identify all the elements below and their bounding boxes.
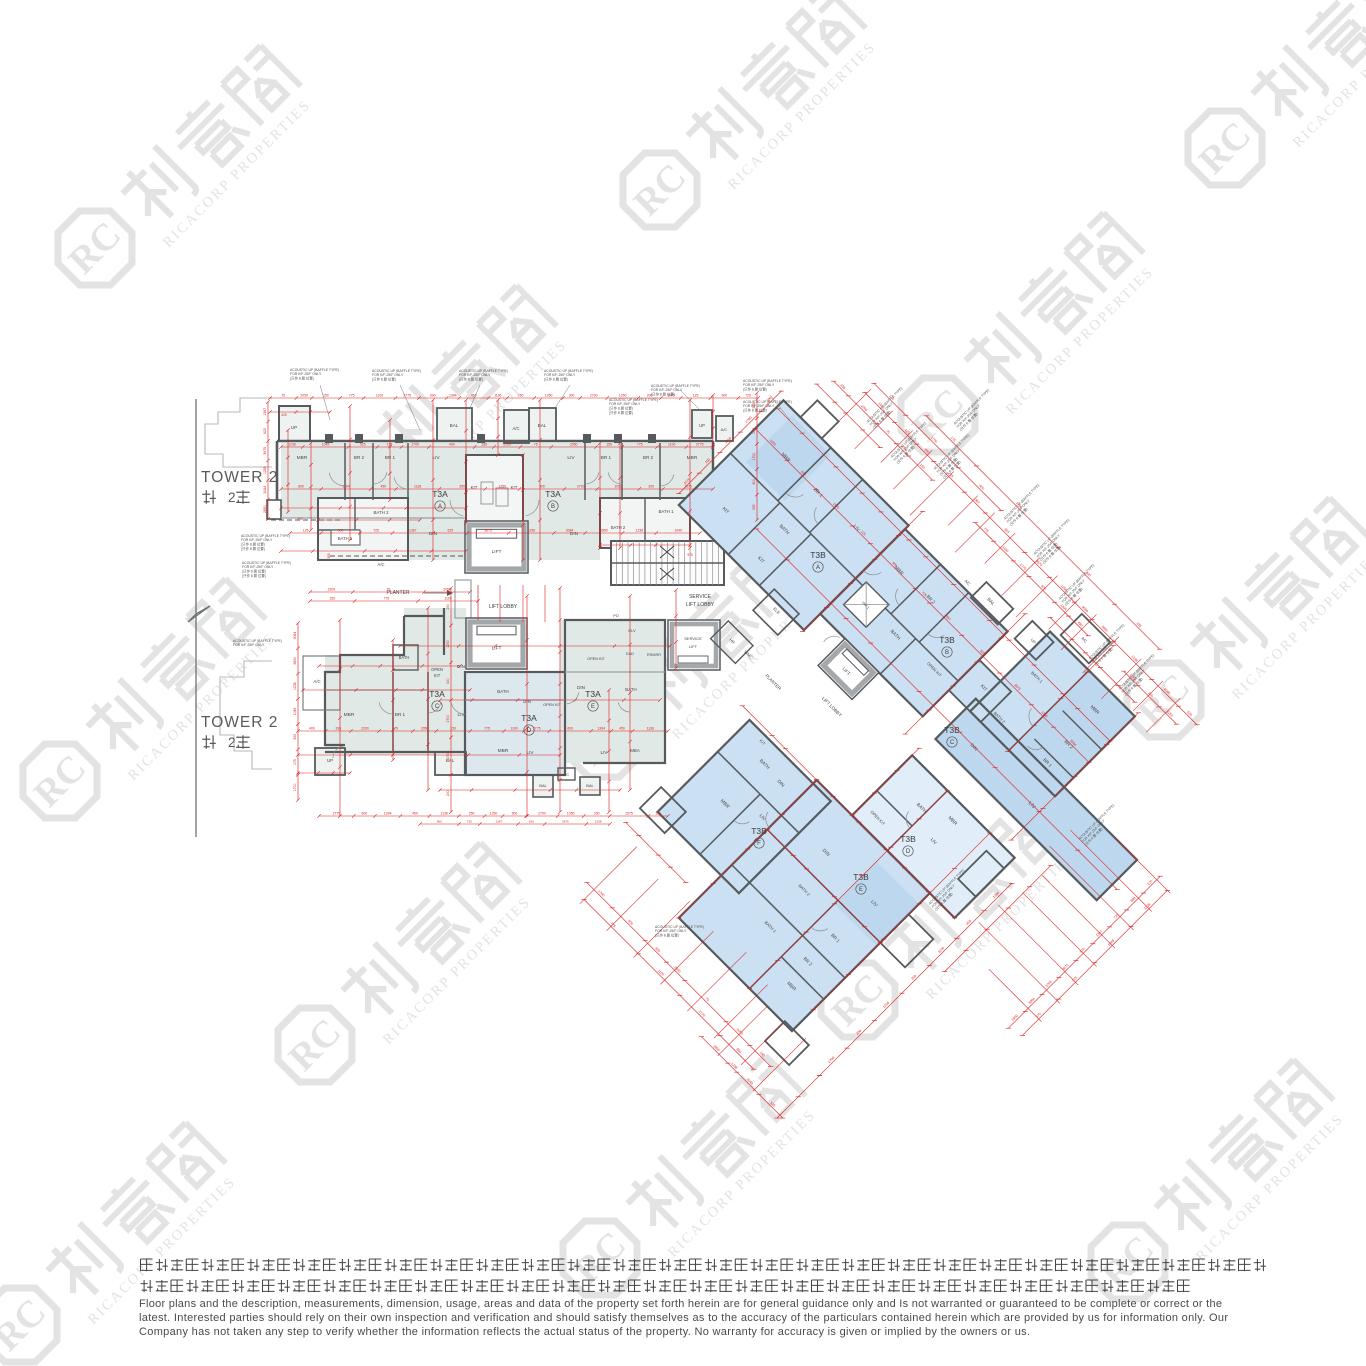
svg-text:1367: 1367 [263,408,267,416]
svg-text:900: 900 [338,528,344,532]
svg-text:2: 2 [228,490,236,505]
svg-text:T3B: T3B [751,826,767,836]
svg-text:Floor plans and the descriptio: Floor plans and the description, measure… [139,1298,1222,1310]
svg-text:1136: 1136 [440,811,447,815]
svg-text:725: 725 [745,393,751,397]
svg-text:F: F [757,841,761,847]
svg-text:BATH: BATH [625,687,636,692]
svg-text:1136: 1136 [414,484,421,488]
svg-text:2850: 2850 [600,528,608,532]
svg-text:BAL: BAL [450,423,459,428]
svg-text:2200: 2200 [503,442,511,446]
svg-text:400: 400 [309,726,315,730]
svg-text:E: E [859,887,863,893]
svg-text:RSMRR: RSMRR [647,653,661,657]
svg-text:1136: 1136 [647,726,654,730]
svg-text:450: 450 [412,811,418,815]
svg-text:(只作 8 層 位置): (只作 8 層 位置) [655,933,679,938]
svg-text:1049: 1049 [674,528,682,532]
svg-text:D: D [906,849,911,855]
svg-text:1050: 1050 [619,393,627,397]
svg-text:600: 600 [430,393,436,397]
svg-text:2700: 2700 [577,484,585,488]
svg-text:1250: 1250 [545,393,553,397]
svg-text:1100: 1100 [510,726,517,730]
svg-text:3675: 3675 [562,819,569,823]
svg-text:725: 725 [467,819,472,823]
svg-text:OPEN KIT: OPEN KIT [543,703,561,707]
svg-text:75: 75 [281,393,285,397]
svg-text:2700: 2700 [538,811,546,815]
svg-text:ELV: ELV [628,628,636,633]
svg-text:1700: 1700 [752,453,756,461]
svg-text:BR 2: BR 2 [643,455,654,460]
svg-text:1136: 1136 [494,393,501,397]
svg-text:A/C: A/C [513,426,520,431]
svg-text:BAL: BAL [539,783,547,788]
svg-text:2775: 2775 [533,726,541,730]
svg-text:LIFT: LIFT [492,646,502,652]
svg-text:2050: 2050 [570,442,578,446]
svg-text:75: 75 [387,587,391,591]
svg-text:400: 400 [449,442,455,446]
svg-text:LIV: LIV [567,455,575,461]
svg-text:600: 600 [567,726,573,730]
svg-text:425: 425 [281,413,287,417]
svg-text:335: 335 [481,442,487,446]
svg-text:1049: 1049 [322,442,330,446]
svg-text:(只作 8 層 位置): (只作 8 層 位置) [609,410,633,415]
svg-text:450: 450 [380,484,386,488]
svg-text:BR 1: BR 1 [601,455,612,460]
svg-text:2700: 2700 [590,393,598,397]
svg-text:MBR: MBR [344,712,355,718]
svg-text:3084: 3084 [566,528,574,532]
svg-text:1100: 1100 [668,442,675,446]
svg-text:T3A: T3A [585,689,601,699]
svg-text:2050: 2050 [421,726,429,730]
svg-text:TOWER 2: TOWER 2 [201,714,278,731]
svg-text:200: 200 [446,790,450,796]
svg-text:250: 250 [446,604,450,610]
svg-text:T3A: T3A [432,489,448,499]
svg-text:(只作 8 層 位置): (只作 8 層 位置) [372,377,396,382]
svg-text:1394: 1394 [342,484,350,488]
svg-text:300: 300 [512,811,518,815]
svg-text:B: B [551,504,555,510]
svg-text:(只作 8 層 位置): (只作 8 層 位置) [609,406,633,411]
svg-text:300: 300 [569,393,575,397]
svg-text:900: 900 [721,393,727,397]
svg-text:400: 400 [752,479,756,485]
svg-text:2775: 2775 [333,811,341,815]
svg-text:BATH: BATH [399,655,410,660]
svg-text:625: 625 [263,428,267,434]
svg-text:(只作 8 層 位置): (只作 8 層 位置) [743,408,767,413]
svg-text:725: 725 [373,528,379,532]
svg-text:1575: 1575 [625,811,633,815]
svg-text:2200: 2200 [328,587,336,591]
svg-text:A/C: A/C [721,427,728,432]
svg-text:(只作 8 層 位置): (只作 8 層 位置) [242,573,266,578]
svg-text:1050: 1050 [567,811,575,815]
svg-text:2700: 2700 [446,715,450,723]
svg-text:975: 975 [687,553,693,557]
svg-text:OPEN KIT: OPEN KIT [587,657,605,661]
svg-text:300: 300 [327,553,331,559]
svg-text:LIFT LOBBY: LIFT LOBBY [489,604,518,610]
svg-text:BAL: BAL [586,783,594,788]
svg-text:125: 125 [655,811,661,815]
svg-text:A/C: A/C [378,562,385,567]
svg-text:3084: 3084 [263,486,267,494]
svg-text:550: 550 [297,517,303,521]
svg-text:A: A [438,504,442,510]
svg-text:T3A: T3A [545,489,561,499]
svg-text:600: 600 [298,484,304,488]
svg-text:BATH 2: BATH 2 [611,525,626,530]
svg-text:3675: 3675 [484,528,492,532]
svg-text:FOR K/F-25/F ONLY: FOR K/F-25/F ONLY [233,643,265,647]
svg-text:625: 625 [447,528,453,532]
svg-text:DIN: DIN [577,685,585,690]
svg-text:C: C [950,740,955,746]
svg-text:A/C: A/C [563,773,570,777]
svg-text:2775: 2775 [696,442,704,446]
svg-text:LIFT: LIFT [492,549,502,555]
svg-text:600: 600 [361,811,367,815]
svg-text:1238: 1238 [293,682,297,690]
svg-text:1367: 1367 [496,819,503,823]
svg-text:MBR: MBR [687,455,698,461]
svg-text:BATH 1: BATH 1 [658,509,674,514]
svg-text:2050: 2050 [300,393,308,397]
svg-text:(只作 8 層 位置): (只作 8 層 位置) [241,542,265,547]
svg-text:335: 335 [335,726,341,730]
svg-text:MBR: MBR [498,748,509,754]
svg-text:3675: 3675 [263,447,267,455]
svg-text:1238: 1238 [288,442,296,446]
svg-text:2850: 2850 [263,505,267,513]
svg-text:3084: 3084 [293,632,297,640]
svg-text:(只作 8 層 位置): (只作 8 層 位置) [651,392,675,397]
svg-text:2: 2 [228,735,236,750]
svg-text:1258: 1258 [528,528,536,532]
svg-text:BAL: BAL [538,423,547,428]
svg-text:Company has not taken any step: Company has not taken any step to verify… [139,1326,1030,1338]
svg-text:200: 200 [648,484,654,488]
svg-text:775: 775 [383,596,389,600]
svg-text:1100: 1100 [444,596,451,600]
svg-text:MBA: MBA [630,748,640,753]
svg-text:(只作 8 層 位置): (只作 8 層 位置) [241,546,265,551]
svg-text:UP: UP [699,423,705,428]
svg-text:175: 175 [387,442,393,446]
svg-text:OPEN: OPEN [431,667,443,672]
svg-text:(只作 8 層 位置): (只作 8 層 位置) [459,377,483,382]
svg-text:1049: 1049 [293,708,297,716]
svg-text:775: 775 [637,442,643,446]
svg-text:125: 125 [303,528,309,532]
svg-text:1250: 1250 [499,484,507,488]
svg-text:1100: 1100 [376,393,383,397]
svg-text:150: 150 [323,393,329,397]
svg-text:125: 125 [693,393,699,397]
svg-text:300: 300 [446,678,450,684]
svg-text:1238: 1238 [636,528,644,532]
svg-text:335: 335 [752,504,756,510]
svg-text:(只作 8 層 位置): (只作 8 層 位置) [290,376,314,381]
svg-text:1394: 1394 [597,726,605,730]
svg-text:75: 75 [534,442,538,446]
svg-text:175: 175 [293,759,297,765]
svg-text:1258: 1258 [595,819,602,823]
svg-text:150: 150 [329,596,335,600]
svg-text:BATH: BATH [497,689,508,694]
svg-text:775: 775 [349,393,355,397]
svg-text:T3A: T3A [521,713,537,723]
svg-text:UP: UP [327,758,333,763]
svg-text:1394: 1394 [449,393,457,397]
svg-text:SERVICE: SERVICE [689,594,712,600]
svg-text:250: 250 [469,811,475,815]
svg-text:SERVICE: SERVICE [684,636,702,641]
svg-text:525: 525 [293,734,297,740]
svg-text:latest. Interested parties sho: latest. Interested parties should rely o… [139,1312,1228,1324]
svg-text:2850: 2850 [293,657,297,665]
svg-text:(只作 8 層 位置): (只作 8 層 位置) [544,377,568,382]
svg-text:A/C: A/C [313,679,320,684]
svg-text:150: 150 [606,442,612,446]
svg-text:LIFT: LIFT [689,644,698,649]
svg-text:BR 1: BR 1 [395,712,406,717]
svg-text:LIFT LOBBY: LIFT LOBBY [686,602,715,608]
svg-text:A: A [816,565,820,571]
svg-text:250: 250 [518,393,524,397]
svg-text:1250: 1250 [490,811,498,815]
svg-text:1258: 1258 [263,466,267,474]
svg-text:B: B [945,650,949,656]
svg-text:1250: 1250 [446,640,450,648]
svg-text:525: 525 [360,442,366,446]
svg-text:LIV: LIV [527,750,535,755]
svg-text:2200: 2200 [361,726,369,730]
svg-text:T3B: T3B [810,550,826,560]
svg-text:E: E [591,704,595,710]
svg-text:(只作 8 層 位置): (只作 8 層 位置) [743,387,767,392]
svg-text:1700: 1700 [293,784,297,792]
svg-text:BATH 2: BATH 2 [373,510,389,515]
svg-text:(只作 8 層 位置): (只作 8 層 位置) [242,569,266,574]
svg-text:625: 625 [529,819,534,823]
svg-text:PD: PD [613,613,619,618]
svg-text:MBR: MBR [297,455,308,461]
svg-text:1050: 1050 [614,484,622,488]
svg-text:1700: 1700 [411,442,419,446]
svg-text:LIV: LIV [432,455,440,461]
svg-text:775: 775 [484,726,490,730]
svg-text:1367: 1367 [409,528,417,532]
svg-text:200: 200 [594,811,600,815]
svg-text:BATH 1: BATH 1 [338,536,353,541]
svg-text:KIT: KIT [434,673,441,678]
svg-text:UP: UP [291,425,297,430]
svg-text:900: 900 [437,819,442,823]
svg-text:T3A: T3A [429,689,445,699]
svg-text:450: 450 [619,726,625,730]
svg-text:250: 250 [459,484,465,488]
svg-text:BR 2: BR 2 [354,455,365,460]
svg-text:1050: 1050 [446,752,450,760]
svg-text:1394: 1394 [384,811,392,815]
